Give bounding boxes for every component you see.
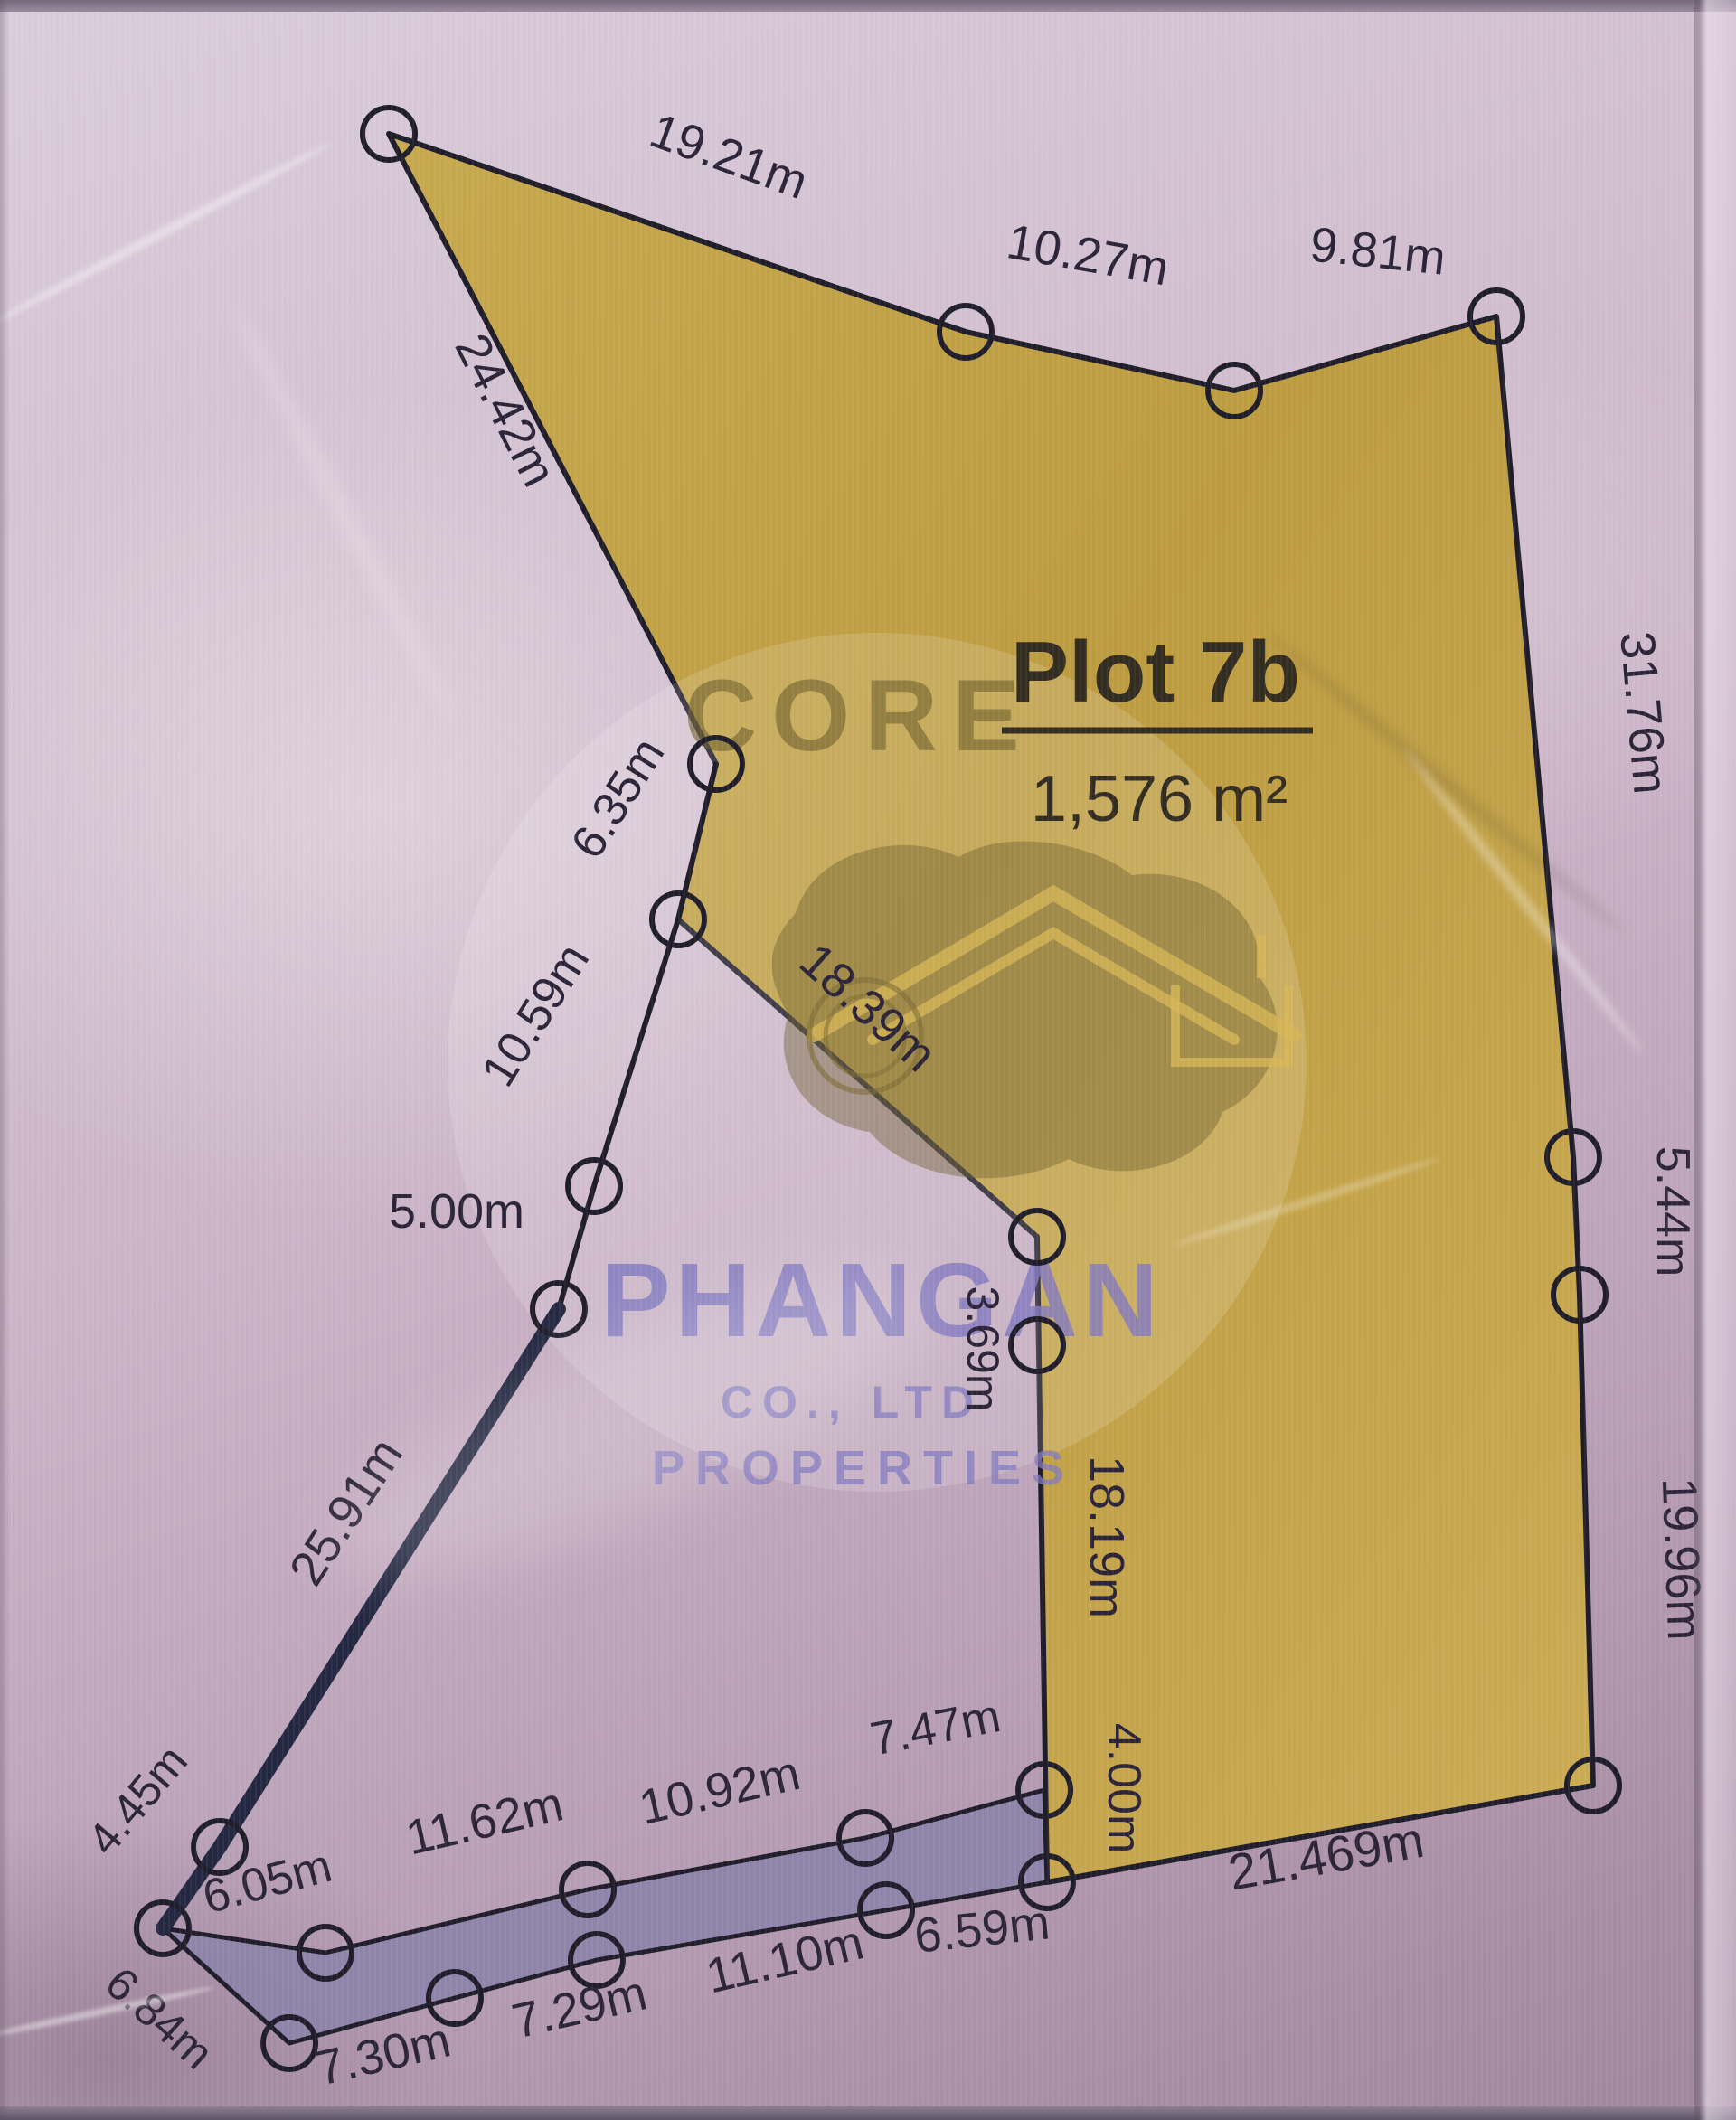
plot-area: 1,576 m² [1031,763,1288,835]
dimension-label: 4.45m [78,1736,197,1864]
dimension-label: 4.00m [1098,1723,1150,1854]
dimension-label: 31.76m [1609,629,1677,796]
watermark-text-brand_sub1: CO., LTD [721,1377,983,1427]
dimension-label: 19.96m [1652,1476,1712,1641]
dimension-label: 11.62m [401,1776,568,1865]
dimension-label: 5.44m [1646,1146,1699,1277]
plot-title: Plot 7b [1011,624,1300,721]
dimension-label: 10.92m [634,1746,805,1835]
scanned-survey-photo: COREPHANGANCO., LTDPROPERTIES19.21m10.27… [0,0,1736,2120]
dimension-label: 6.84m [96,1957,223,2079]
dimension-label: 5.00m [389,1184,524,1239]
dimension-label: 3.69m [958,1286,1008,1412]
dimension-label: 6.59m [911,1895,1052,1963]
watermark-text-brand_main: PHANGAN [600,1241,1162,1359]
dimension-label: 7.47m [866,1690,1005,1767]
survey-drawing: COREPHANGANCO., LTDPROPERTIES19.21m10.27… [0,0,1736,2120]
dimension-label: 18.19m [1080,1456,1134,1618]
dimension-label: 19.21m [643,103,815,210]
dimension-label: 10.27m [1003,214,1173,296]
watermark-text-brand_top: CORE [684,659,1034,772]
dimension-label: 9.81m [1307,217,1448,285]
watermark-text-brand_sub2: PROPERTIES [652,1441,1075,1495]
